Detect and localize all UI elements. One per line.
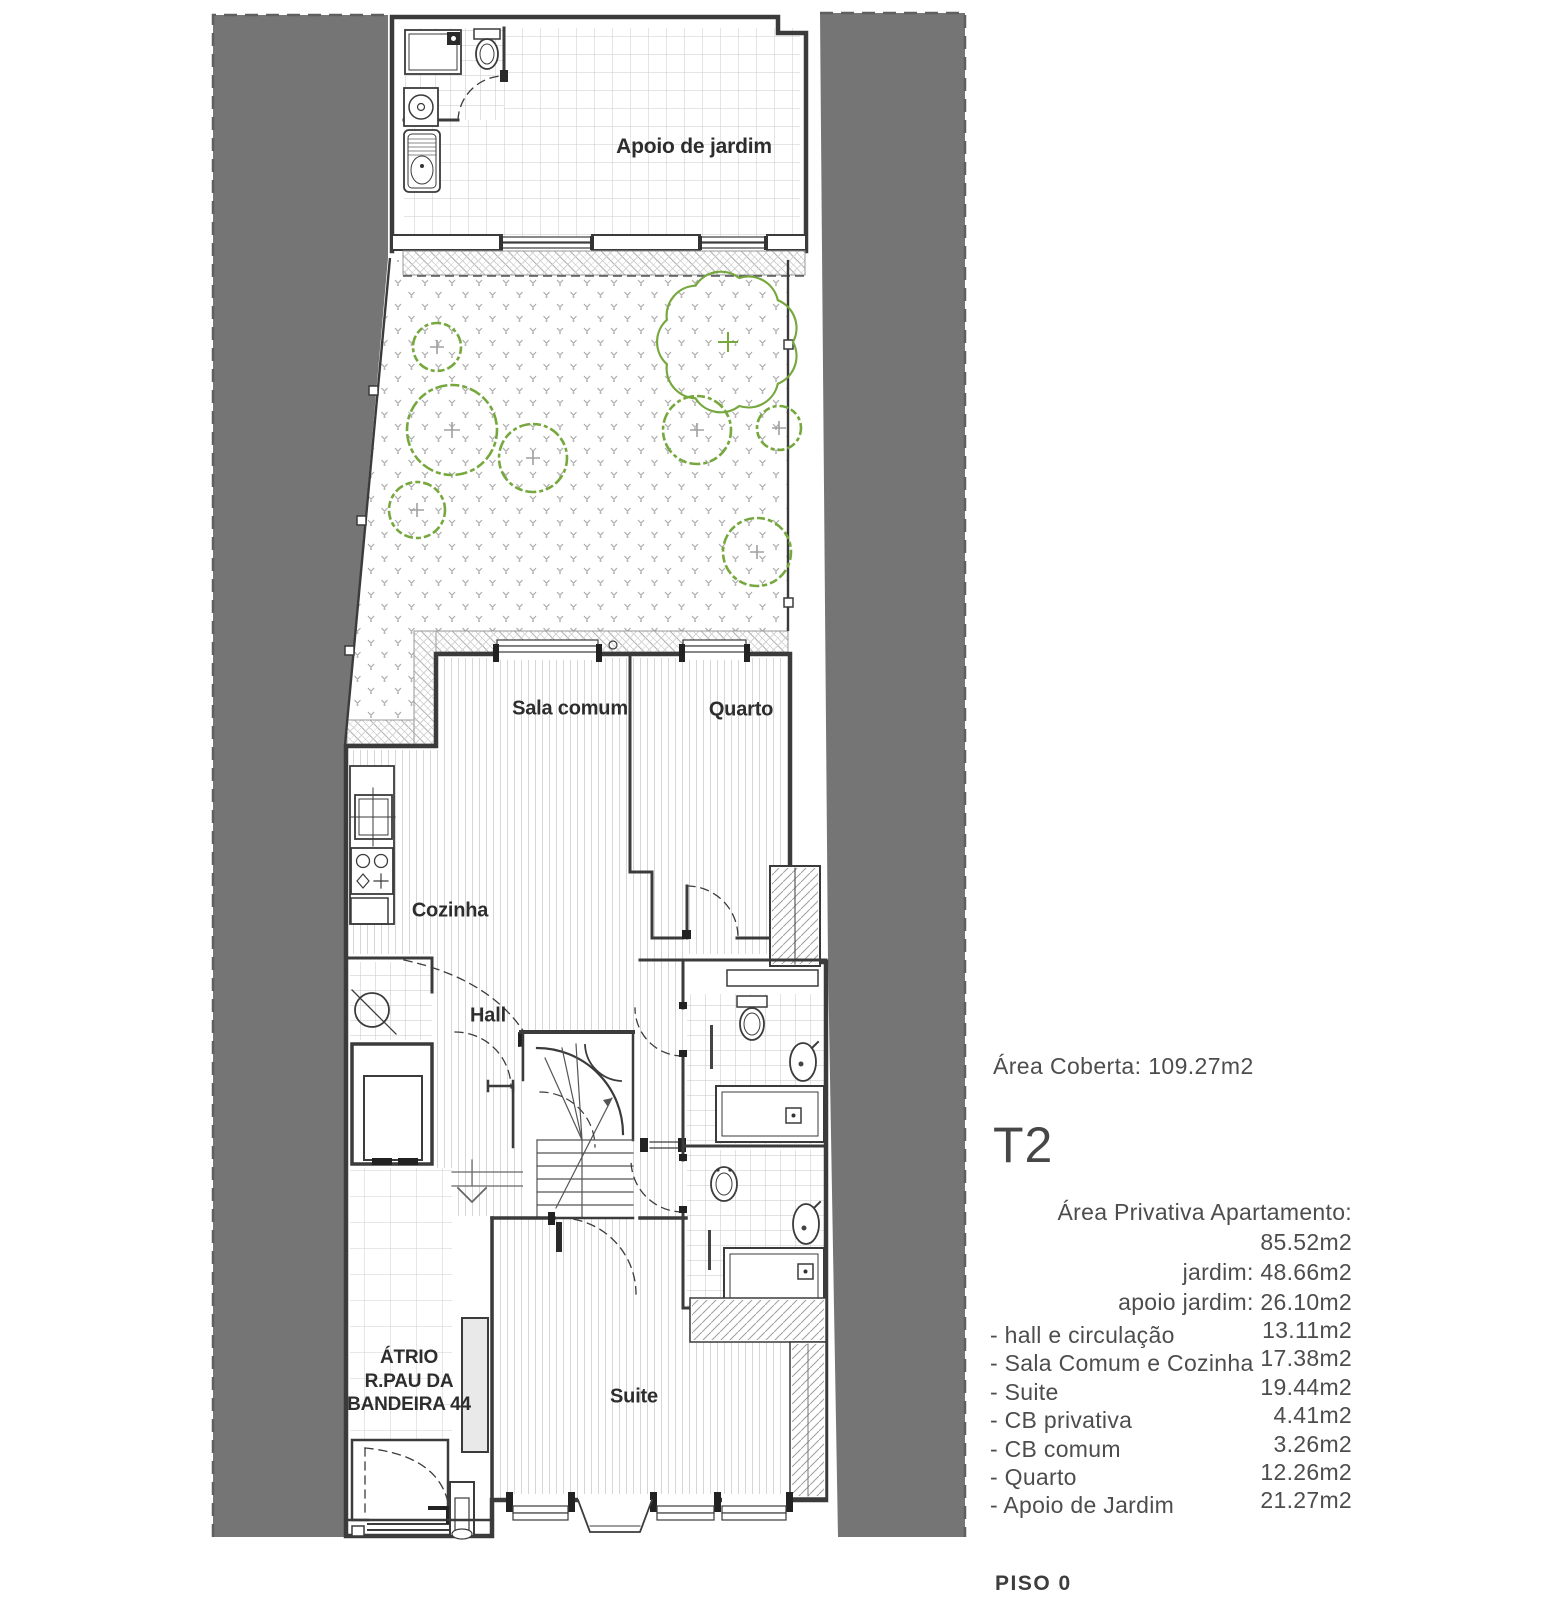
- covered-area-value: 109.27m2: [1148, 1053, 1254, 1079]
- atrio-line-1: ÁTRIO: [347, 1346, 471, 1370]
- toilet: [711, 1167, 737, 1201]
- room-label-sala-comum: Sala comum: [512, 698, 628, 721]
- room-label-quarto: Quarto: [709, 699, 773, 722]
- room-label-hall: Hall: [470, 1005, 506, 1028]
- floor-plan-page: Apoio de jardim Sala comum Quarto Cozinh…: [0, 0, 1556, 1609]
- room-label-atrio: ÁTRIO R.PAU DA BANDEIRA 44: [347, 1346, 471, 1417]
- private-area-line: apoio jardim: 26.10m2: [990, 1287, 1352, 1317]
- bedroom-window: [679, 640, 750, 662]
- private-areas-block: Área Privativa Apartamento: 85.52m2 jard…: [990, 1197, 1352, 1317]
- room-label-cozinha: Cozinha: [412, 900, 488, 923]
- room-label-apoio-de-jardim: Apoio de jardim: [616, 135, 772, 159]
- covered-area-label: Área Coberta:: [993, 1053, 1141, 1079]
- room-label-suite: Suite: [610, 1386, 658, 1409]
- floor-title: PISO 0: [995, 1572, 1072, 1596]
- unit-type-title: T2: [993, 1116, 1053, 1174]
- living-room-window: [493, 640, 602, 662]
- covered-area-line: Área Coberta: 109.27m2: [993, 1053, 1254, 1080]
- atrio-line-2: R.PAU DA: [347, 1369, 471, 1393]
- room-areas-list: - hall e circulação 13.11m2 - Sala Comum…: [990, 1322, 1352, 1521]
- atrio-line-3: BANDEIRA 44: [347, 1393, 471, 1417]
- toilet: [474, 29, 500, 39]
- bathtub: [716, 1086, 824, 1142]
- lift: [352, 1044, 432, 1165]
- bedroom-wardrobe: [770, 866, 820, 966]
- garden-hatch-strip-top: [403, 251, 805, 275]
- room-area-row: - Apoio de Jardim 21.27m2: [990, 1492, 1352, 1520]
- private-area-line: Área Privativa Apartamento: 85.52m2: [990, 1197, 1352, 1257]
- washbasin: [793, 1204, 819, 1244]
- private-area-line: jardim: 48.66m2: [990, 1257, 1352, 1287]
- garden-support-building: [392, 15, 806, 251]
- bathtub: [404, 130, 440, 192]
- kitchen-fixtures: [350, 766, 395, 924]
